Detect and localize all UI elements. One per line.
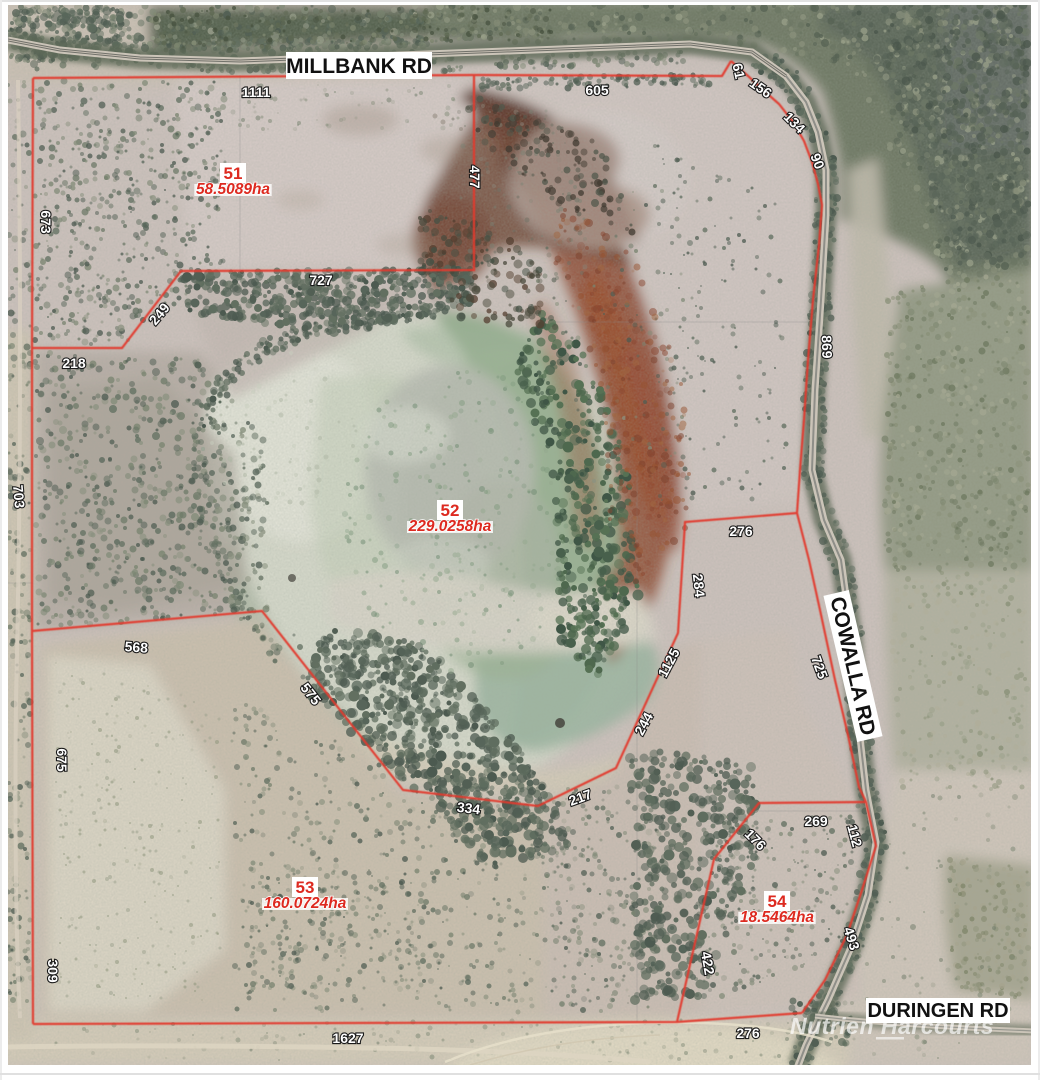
svg-text:477: 477	[467, 165, 483, 189]
svg-text:MILLBANK RD: MILLBANK RD	[286, 55, 432, 78]
svg-text:1111: 1111	[242, 84, 271, 100]
svg-text:276: 276	[729, 523, 753, 539]
svg-text:1627: 1627	[332, 1030, 363, 1046]
svg-text:703: 703	[10, 484, 28, 509]
svg-text:334: 334	[456, 799, 481, 818]
svg-text:568: 568	[124, 638, 149, 656]
svg-text:675: 675	[54, 748, 70, 772]
svg-text:218: 218	[62, 355, 86, 371]
svg-text:727: 727	[309, 272, 333, 288]
svg-text:673: 673	[38, 210, 54, 234]
svg-text:18.5464ha: 18.5464ha	[740, 909, 814, 926]
svg-text:284: 284	[690, 573, 708, 598]
svg-text:605: 605	[585, 82, 609, 98]
svg-text:229.0258ha: 229.0258ha	[408, 518, 492, 535]
svg-text:160.0724ha: 160.0724ha	[264, 895, 347, 912]
svg-text:58.5089ha: 58.5089ha	[196, 181, 270, 198]
svg-text:276: 276	[736, 1025, 760, 1041]
svg-text:869: 869	[819, 335, 836, 359]
svg-text:309: 309	[45, 959, 61, 983]
svg-text:269: 269	[804, 813, 828, 829]
svg-text:Nutrien Harcourts: Nutrien Harcourts	[790, 1013, 994, 1039]
